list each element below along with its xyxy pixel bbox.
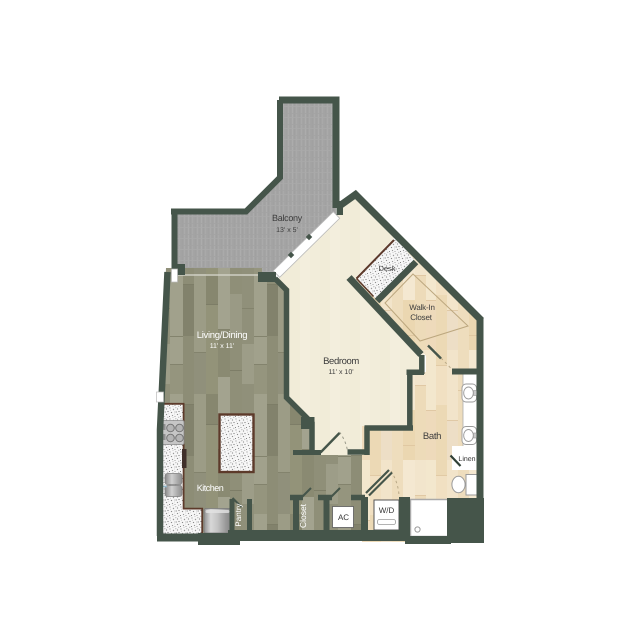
svg-text:Balcony: Balcony (272, 213, 303, 223)
svg-text:Pantry: Pantry (234, 503, 243, 526)
svg-text:AC: AC (338, 513, 349, 522)
svg-text:13' x 5': 13' x 5' (276, 227, 298, 234)
svg-text:Desk: Desk (378, 264, 395, 273)
svg-text:Closet: Closet (410, 313, 432, 322)
svg-text:Linen: Linen (458, 455, 475, 463)
svg-text:Walk-In: Walk-In (409, 303, 434, 312)
svg-text:Living/Dining: Living/Dining (197, 330, 248, 341)
svg-text:Bedroom: Bedroom (323, 356, 359, 367)
svg-text:Kitchen: Kitchen (197, 483, 224, 493)
svg-text:11' x 10': 11' x 10' (328, 369, 353, 376)
svg-text:11' x 11': 11' x 11' (210, 343, 235, 350)
svg-text:Bath: Bath (423, 431, 441, 442)
svg-text:W/D: W/D (379, 506, 395, 515)
svg-text:Closet: Closet (298, 503, 308, 528)
